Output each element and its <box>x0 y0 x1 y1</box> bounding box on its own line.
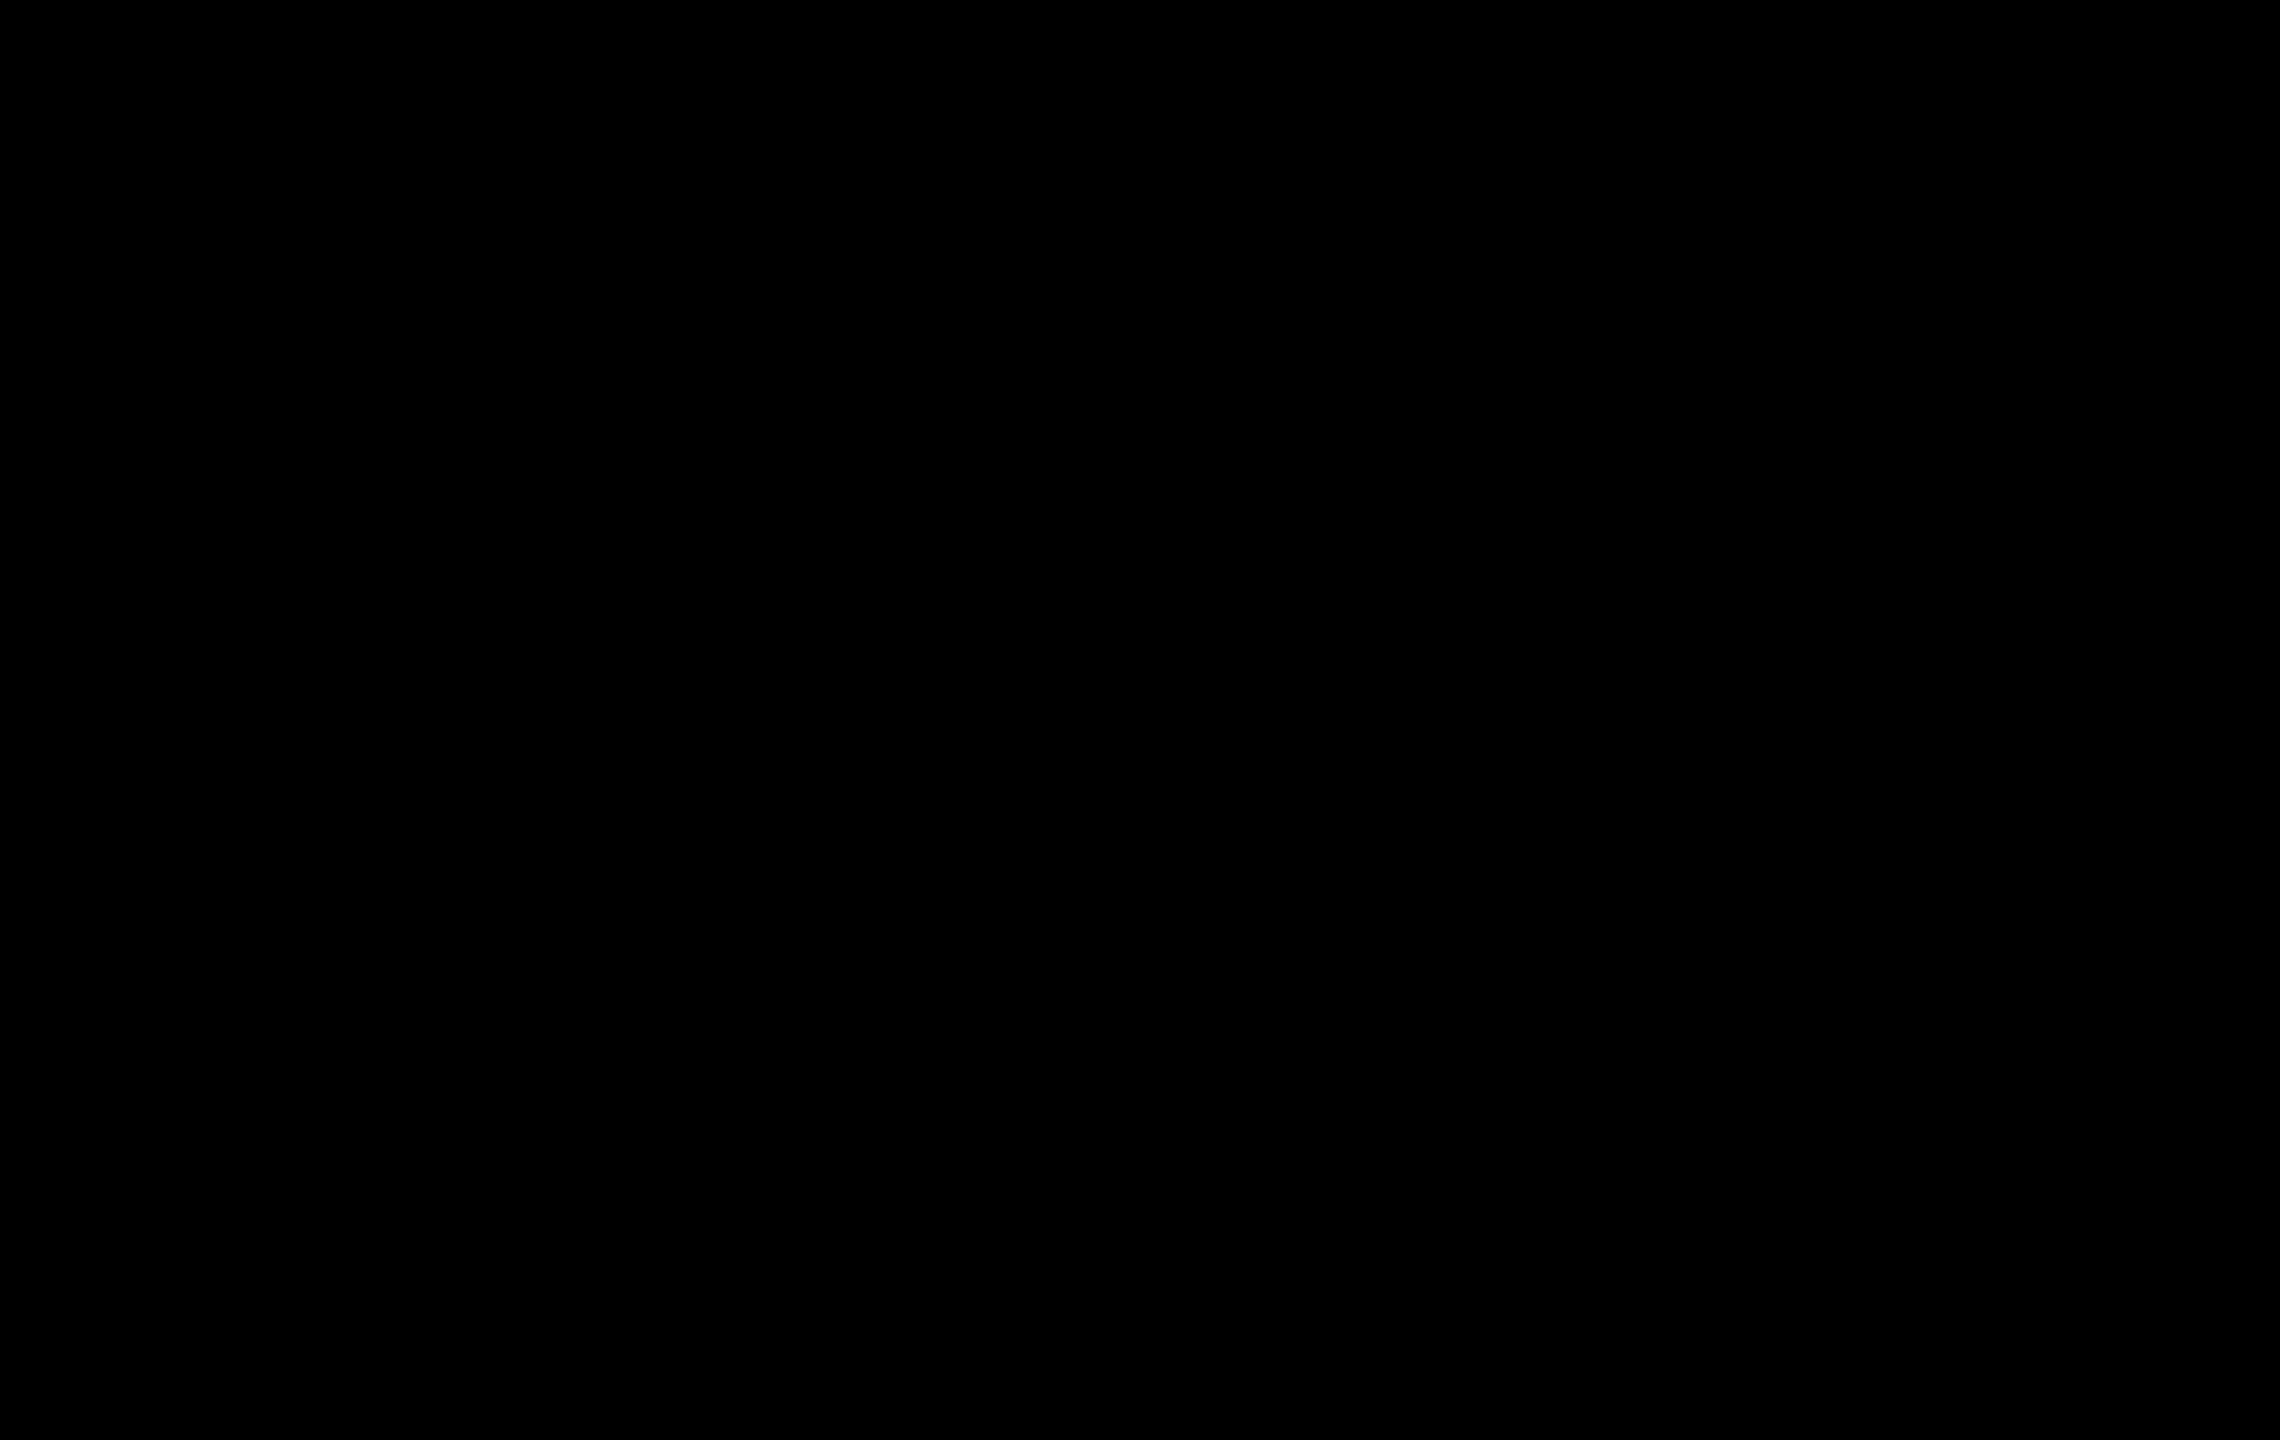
tagpro-map-stage <box>0 0 2280 1440</box>
screen: { "map": { "width": 2280, "height": 1440… <box>0 0 2280 1440</box>
game-map[interactable] <box>0 0 2280 1440</box>
